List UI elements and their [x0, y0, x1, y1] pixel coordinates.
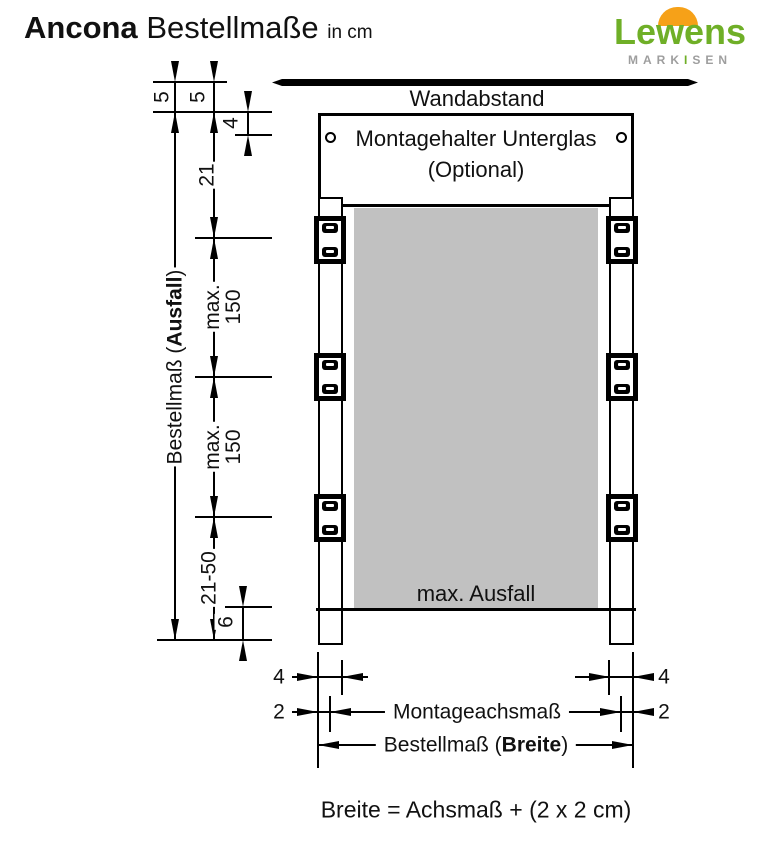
rail-bracket-right-middle	[606, 353, 638, 401]
mounting-hole-left	[325, 132, 336, 143]
bracket-clip-icon	[614, 384, 630, 394]
title-unit: in cm	[327, 22, 372, 43]
bracket-clip-icon	[614, 223, 630, 233]
dim-label-21: 21	[196, 161, 219, 188]
arrowhead	[210, 377, 218, 398]
logo-tagline-right: SEN	[692, 53, 732, 67]
arrowhead	[210, 496, 218, 517]
extension-line	[225, 606, 272, 608]
dim-label-6: 6	[215, 614, 238, 630]
guide-rail-right	[609, 197, 634, 645]
dim-label-4-top: 4	[220, 115, 243, 131]
dim-label-4-bottom-left: 4	[273, 667, 285, 688]
arrowhead	[210, 112, 218, 133]
rail-bracket-right-bottom	[606, 494, 638, 542]
arrowhead	[318, 741, 339, 749]
extension-line	[195, 237, 272, 239]
dimension-line	[242, 607, 244, 640]
bracket-clip-icon	[614, 525, 630, 535]
formula-text: Breite = Achsmaß + (2 x 2 cm)	[321, 797, 632, 824]
arrowhead	[612, 741, 633, 749]
arrowhead	[633, 708, 654, 716]
arrowhead	[210, 517, 218, 538]
dim-label-max150-lower: max.150	[201, 422, 245, 472]
arrowhead	[244, 135, 252, 156]
arrowhead	[171, 112, 179, 133]
arrowhead	[297, 708, 318, 716]
title-text: Bestellmaße	[146, 10, 318, 45]
bracket-clip-icon	[322, 501, 338, 511]
dim-label-montageachsmass: Montageachsmaß	[385, 701, 569, 724]
rail-bracket-right-top	[606, 216, 638, 264]
arrowhead	[171, 61, 179, 82]
bracket-clip-icon	[614, 247, 630, 257]
wall-distance-label: Wandabstand	[410, 88, 545, 110]
logo-wordmark: Lewens	[604, 14, 756, 50]
wall-line	[272, 79, 698, 86]
dim-label-21-50: 21-50	[198, 549, 221, 607]
arrowhead	[330, 708, 351, 716]
bracket-box-label-line2: (Optional)	[428, 159, 525, 181]
awning-fabric-area	[354, 208, 598, 610]
extension-line	[235, 134, 272, 136]
bracket-clip-icon	[614, 360, 630, 370]
dim-label-5-left: 5	[151, 89, 174, 105]
extension-line	[195, 516, 272, 518]
arrowhead	[342, 673, 363, 681]
bracket-clip-icon	[322, 384, 338, 394]
dim-label-4-bottom-right: 4	[658, 667, 670, 688]
bracket-clip-icon	[322, 360, 338, 370]
dim-label-bestellmass-breite: Bestellmaß (Breite)	[376, 734, 576, 757]
diagram-canvas: Ancona Bestellmaße in cm Lewens MARKISEN…	[0, 0, 768, 843]
arrowhead	[239, 586, 247, 607]
page-title: Ancona Bestellmaße in cm	[24, 10, 373, 46]
logo-tagline-left: MARK	[628, 53, 684, 67]
dim-label-bestellmass-ausfall: Bestellmaß (Ausfall)	[164, 268, 187, 467]
arrowhead	[210, 61, 218, 82]
logo-tagline: MARKISEN	[604, 53, 756, 67]
rail-bracket-left-top	[314, 216, 346, 264]
arrowhead	[210, 217, 218, 238]
mounting-hole-right	[616, 132, 627, 143]
rail-bracket-left-bottom	[314, 494, 346, 542]
dim-label-2-bottom-left: 2	[273, 702, 285, 723]
arrowhead	[600, 708, 621, 716]
arrowhead	[210, 238, 218, 259]
max-ausfall-label: max. Ausfall	[417, 583, 536, 605]
bracket-clip-icon	[614, 501, 630, 511]
arrowhead	[244, 91, 252, 112]
lewens-logo: Lewens MARKISEN	[604, 14, 756, 67]
bracket-clip-icon	[322, 223, 338, 233]
bracket-clip-icon	[322, 247, 338, 257]
title-product-name: Ancona	[24, 10, 138, 45]
arrowhead	[589, 673, 610, 681]
arrowhead	[633, 673, 654, 681]
dim-label-5-right: 5	[187, 89, 210, 105]
dim-label-max150-upper: max.150	[201, 282, 245, 332]
arrowhead	[239, 640, 247, 661]
arrowhead	[171, 619, 179, 640]
front-edge-line	[316, 608, 636, 611]
arrowhead	[210, 356, 218, 377]
dim-label-2-bottom-right: 2	[658, 702, 670, 723]
dimension-line	[247, 112, 249, 135]
guide-rail-left	[318, 197, 343, 645]
arrowhead	[297, 673, 318, 681]
bracket-box-label-line1: Montagehalter Unterglas	[356, 128, 597, 150]
extension-line	[195, 376, 272, 378]
rail-bracket-left-middle	[314, 353, 346, 401]
bracket-clip-icon	[322, 525, 338, 535]
